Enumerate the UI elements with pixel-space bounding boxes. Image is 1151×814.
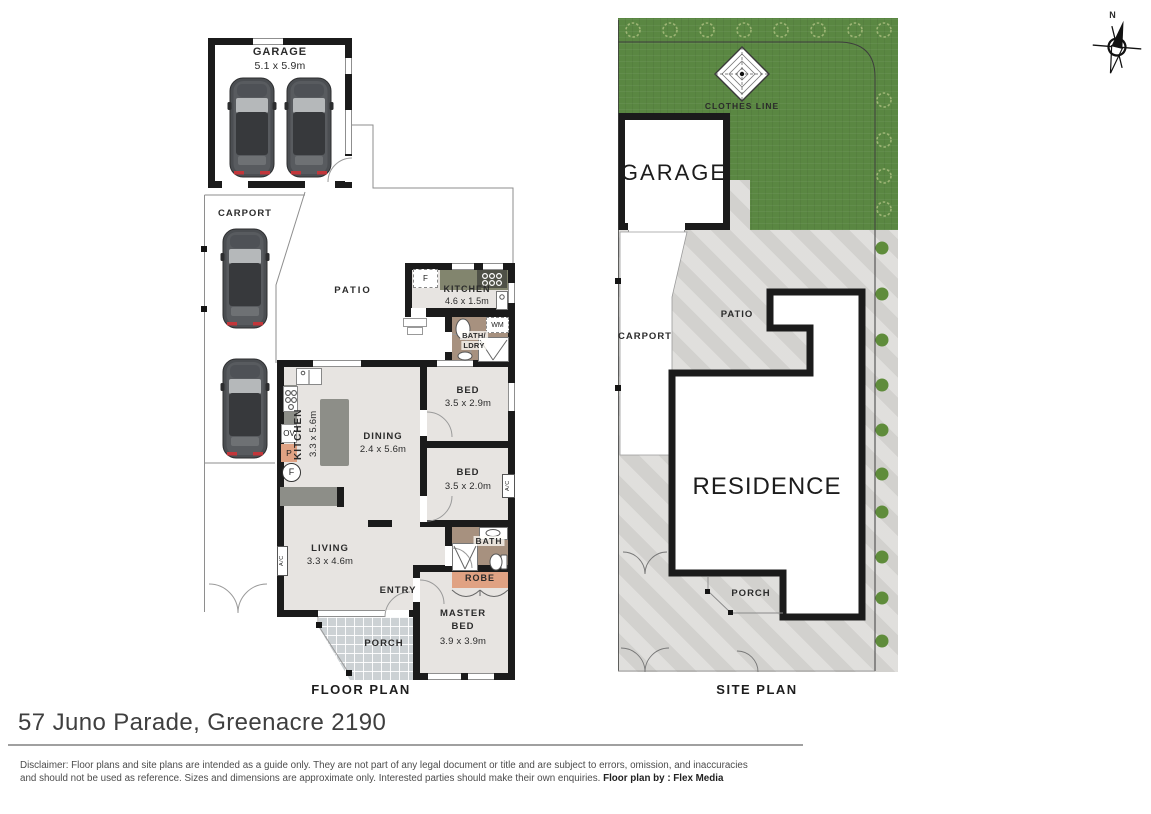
floor-plan-document: { "floor_plan": { "label": "FLOOR PLAN",… <box>0 0 1151 814</box>
porch-outline <box>318 617 350 675</box>
site-porch-label: PORCH <box>731 588 770 599</box>
site-patio-label: PATIO <box>721 309 754 320</box>
clothes-line-icon <box>715 47 769 101</box>
bed1-dims: 3.5 x 2.9m <box>445 398 491 409</box>
bath-laundry-label: BATH/ <box>460 331 488 340</box>
site-residence-label: RESIDENCE <box>692 473 841 501</box>
master-bed-label: BED <box>451 621 474 632</box>
kitchen-dims: 3.3 x 5.6m <box>308 398 319 470</box>
bed2-dims: 3.5 x 2.0m <box>445 481 491 492</box>
living-dims: 3.3 x 4.6m <box>307 556 353 567</box>
residence-outline <box>672 292 862 617</box>
kitchenette-label: KITCHEN <box>444 284 491 294</box>
floor-plan-title: FLOOR PLAN <box>311 682 411 697</box>
garage-dims: 5.1 x 5.9m <box>254 60 305 72</box>
compass-icon <box>1087 15 1147 79</box>
carport-car-icon <box>221 229 270 458</box>
living-label: LIVING <box>311 543 349 554</box>
site-plan-title: SITE PLAN <box>716 682 797 697</box>
hedge-icons <box>626 23 891 216</box>
bath-label: BATH <box>474 536 505 546</box>
dining-label: DINING <box>363 431 402 442</box>
bed1-label: BED <box>456 385 479 396</box>
entry-label: ENTRY <box>380 585 417 596</box>
master-bed-dims: 3.9 x 3.9m <box>440 636 486 647</box>
garage-car-icon <box>228 78 334 177</box>
compass-north-label: N <box>1109 10 1117 20</box>
garage-label: GARAGE <box>253 46 307 58</box>
robe-label: ROBE <box>465 573 495 583</box>
site-carport-label: CARPORT <box>618 331 672 342</box>
kitchenette-dims: 4.6 x 1.5m <box>445 296 489 306</box>
bath-laundry-label: LDRY <box>461 341 486 350</box>
site-garage-label: GARAGE <box>621 160 727 186</box>
carport-label: CARPORT <box>218 208 272 219</box>
porch-label: PORCH <box>364 638 403 649</box>
clothes-line-label: CLOTHES LINE <box>705 101 779 111</box>
bed2-label: BED <box>456 467 479 478</box>
patio-label: PATIO <box>334 285 372 296</box>
master-bed-label: MASTER <box>440 608 486 619</box>
kitchen-label: KITCHEN <box>293 398 304 470</box>
plan-linework <box>0 0 1151 814</box>
dining-dims: 2.4 x 5.6m <box>360 444 406 455</box>
shrub-icons <box>876 242 889 648</box>
